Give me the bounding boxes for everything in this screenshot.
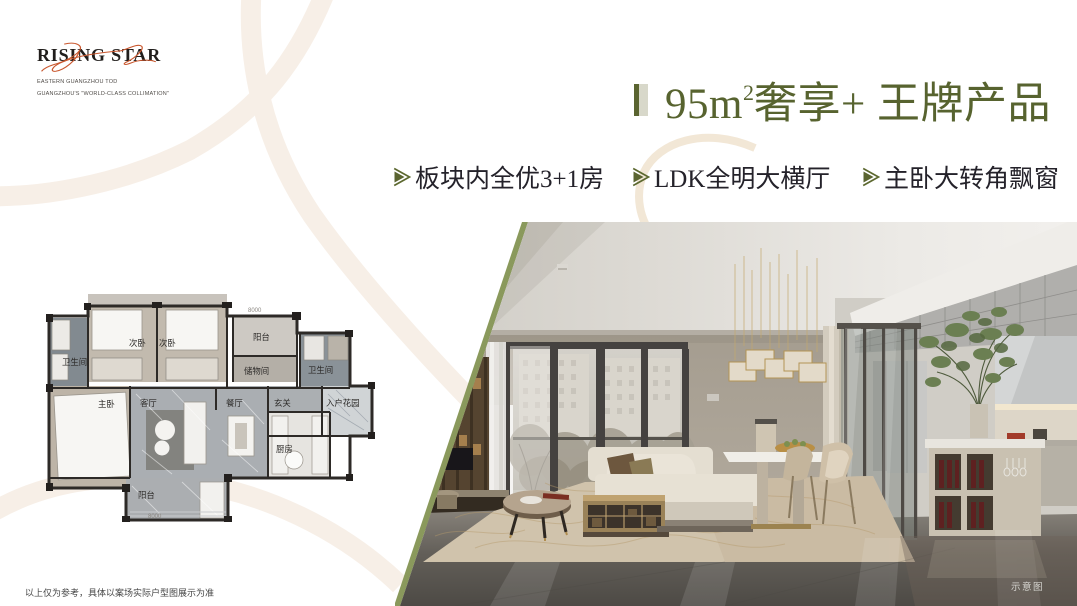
svg-text:8000: 8000 [148,514,162,520]
svg-text:餐厅: 餐厅 [226,398,243,408]
svg-text:客厅: 客厅 [140,398,157,408]
svg-text:次卧: 次卧 [129,338,146,348]
svg-text:入户花园: 入户花园 [326,398,360,408]
svg-text:卫生间: 卫生间 [62,357,87,367]
svg-text:阳台: 阳台 [138,490,155,500]
svg-text:玄关: 玄关 [274,398,291,408]
svg-text:厨房: 厨房 [276,444,293,454]
svg-text:示意图: 示意图 [1011,581,1044,593]
svg-text:8000: 8000 [248,308,262,314]
svg-text:次卧: 次卧 [159,338,176,348]
svg-text:卫生间: 卫生间 [308,365,333,375]
svg-text:主卧: 主卧 [98,399,115,409]
svg-text:阳台: 阳台 [253,332,270,342]
svg-text:储物间: 储物间 [244,366,269,376]
